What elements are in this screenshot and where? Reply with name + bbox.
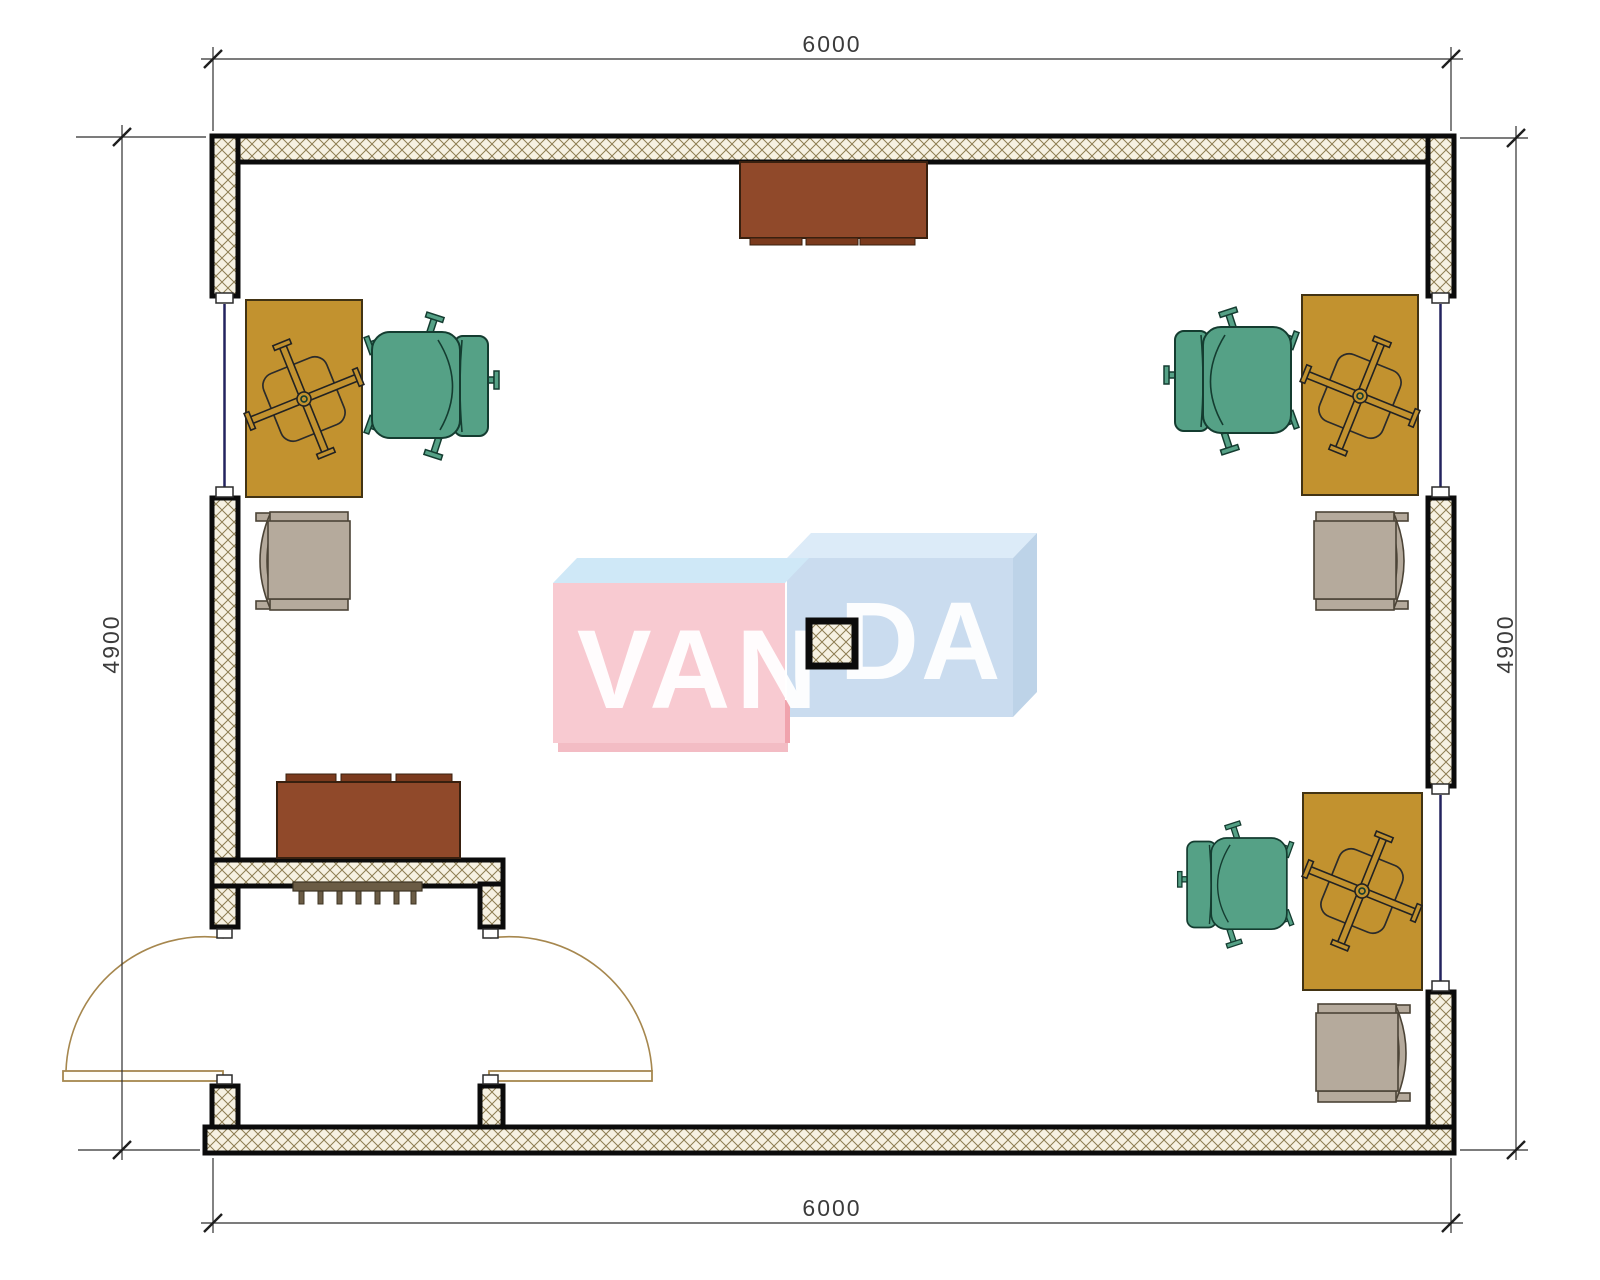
wall-top <box>212 136 1454 162</box>
wall-bottom <box>205 1127 1454 1153</box>
door-jamb-cap <box>483 929 498 938</box>
dimension-label-right: 4900 <box>1492 614 1518 673</box>
cabinet-foot <box>750 238 802 245</box>
watermark-blue-box-side <box>1013 533 1037 717</box>
desk-top-right <box>1281 295 1440 495</box>
cabinet-bottom-body <box>277 782 460 858</box>
desk-top-left <box>225 300 384 497</box>
cabinet-top <box>740 162 927 245</box>
watermark-pink-box-bottom <box>558 743 788 752</box>
dimension-label-top: 6000 <box>802 31 861 57</box>
wall-stub-left-lower <box>212 1086 238 1127</box>
cabinet-foot <box>286 774 336 782</box>
cabinet-top-body <box>740 162 927 238</box>
window-cap <box>216 293 233 303</box>
watermark-text-van: VAN <box>577 607 823 732</box>
dimension-label-bottom: 6000 <box>802 1195 861 1221</box>
window-cap <box>216 487 233 497</box>
side-chair-left <box>256 512 350 610</box>
cabinet-bottom-left <box>277 774 460 858</box>
wall-right-upper <box>1428 136 1454 296</box>
window-cap <box>1432 981 1449 991</box>
wall-stub-right-lower <box>480 1086 503 1127</box>
side-chair-right-lower <box>1316 1004 1410 1102</box>
cabinet-foot <box>806 238 858 245</box>
window-cap <box>1432 293 1449 303</box>
wall-right-middle <box>1428 498 1454 786</box>
door-leaf-right <box>489 1071 652 1081</box>
door-jamb-cap <box>217 1075 232 1084</box>
cabinet-foot <box>860 238 915 245</box>
door-leaf-left <box>63 1071 223 1081</box>
door-jamb-cap <box>483 1075 498 1084</box>
watermark-pink-box-top <box>553 558 809 583</box>
wall-vestibule-stub <box>480 884 503 927</box>
side-chair-right-upper <box>1314 512 1408 610</box>
cabinet-foot <box>341 774 391 782</box>
wall-left-upper <box>212 136 238 296</box>
desk-bottom-right <box>1283 793 1442 990</box>
watermark-blue-box-top <box>787 533 1037 558</box>
column <box>809 621 855 666</box>
watermark-text-da: DA <box>840 580 1003 703</box>
door-jamb-cap <box>217 929 232 938</box>
floor-plan-canvas: VAN DA <box>0 0 1600 1280</box>
dimension-label-left: 4900 <box>98 614 124 673</box>
cabinet-foot <box>396 774 452 782</box>
window-cap <box>1432 487 1449 497</box>
window-cap <box>1432 784 1449 794</box>
